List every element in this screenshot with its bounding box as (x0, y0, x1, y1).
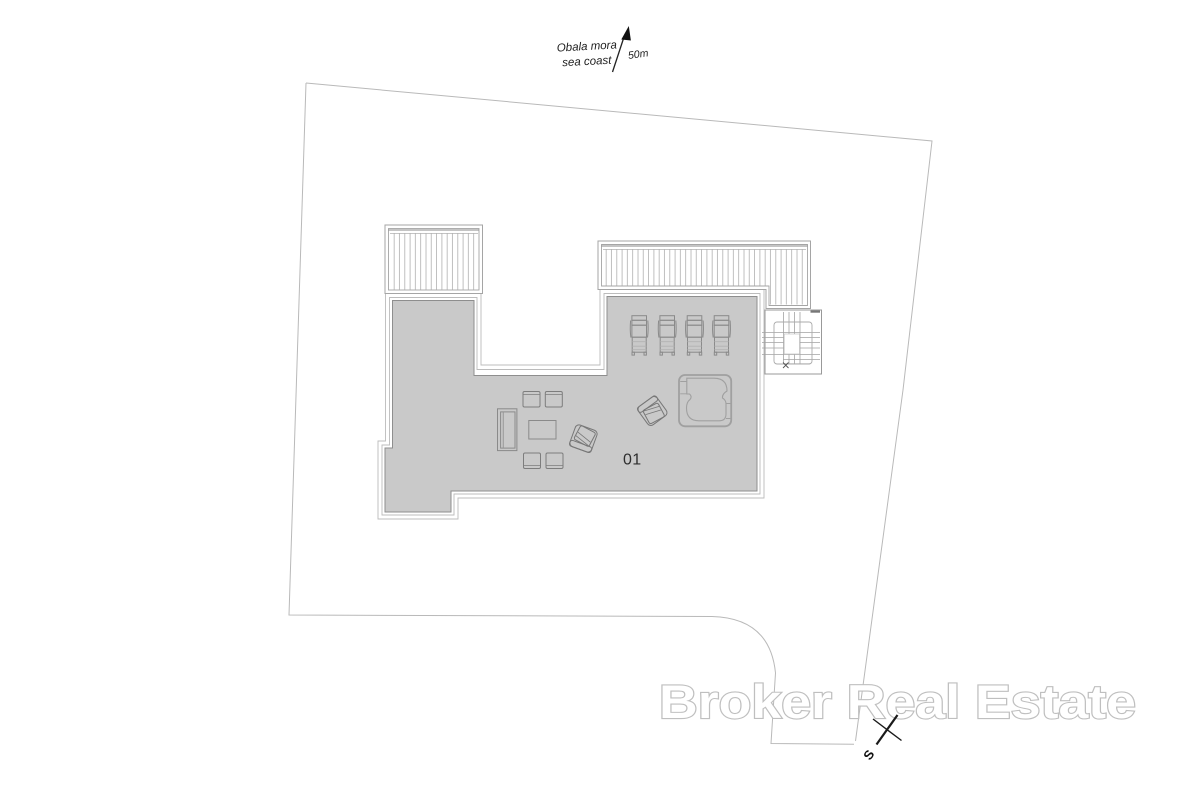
svg-text:01: 01 (623, 452, 641, 469)
svg-text:50m: 50m (627, 47, 649, 62)
svg-text:S: S (860, 747, 877, 763)
svg-text:Broker Real Estate: Broker Real Estate (659, 675, 1136, 728)
svg-text:sea coast: sea coast (562, 55, 613, 70)
svg-text:Obala mora: Obala mora (557, 39, 618, 54)
